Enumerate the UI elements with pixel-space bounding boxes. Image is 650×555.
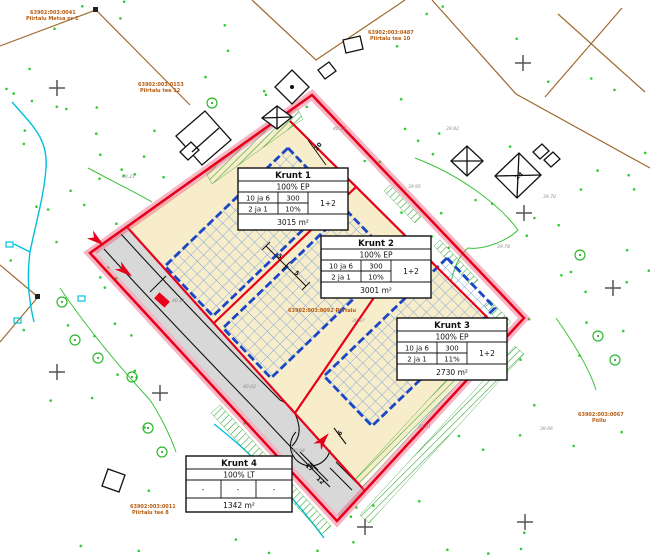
- vegetation-dot: [268, 552, 271, 555]
- svg-text:63902:003:0092 Piirtalu: 63902:003:0092 Piirtalu: [288, 308, 357, 314]
- vegetation-dot: [31, 100, 34, 103]
- vegetation-dot: [104, 286, 107, 289]
- vegetation-dot: [24, 129, 27, 132]
- vegetation-dot: [67, 324, 70, 327]
- vegetation-dot: [116, 373, 119, 376]
- spot-height: 40.04: [292, 448, 305, 454]
- spot-height: 39.91: [418, 424, 431, 430]
- vegetation-dot: [560, 274, 563, 277]
- plot-table-krunt-4: Krunt 4 100% LT - - - 1342 m²: [186, 456, 292, 512]
- svg-text:Piirtalu tee 12: Piirtalu tee 12: [140, 88, 181, 94]
- svg-text:Põllu: Põllu: [592, 418, 607, 424]
- vegetation-dot: [224, 24, 227, 27]
- survey-cross-icon: [152, 385, 168, 401]
- vegetation-dot: [526, 234, 529, 237]
- plot-area: 2730 m²: [436, 368, 468, 377]
- vegetation-dot: [350, 515, 353, 518]
- plot-area: 1342 m²: [223, 501, 255, 510]
- vegetation-dot: [626, 249, 629, 252]
- vegetation-dot: [134, 370, 137, 373]
- vegetation-dot: [263, 90, 266, 93]
- svg-text:Piirtalu tee 10: Piirtalu tee 10: [370, 36, 411, 42]
- cadastral-label: 63902:003:0011 Piirtalu tee 8: [130, 504, 176, 516]
- plot-usage: 100% EP: [435, 333, 469, 342]
- vegetation-dot: [91, 397, 94, 400]
- plot-title: Krunt 3: [434, 321, 470, 331]
- vegetation-dot: [148, 489, 151, 492]
- vegetation-dot: [53, 27, 56, 30]
- plot-usage: 100% EP: [276, 183, 310, 192]
- vegetation-dot: [96, 106, 99, 109]
- survey-cross-icon: [49, 80, 65, 96]
- plot-floors: 1+2: [320, 199, 336, 208]
- vegetation-dot: [235, 538, 238, 541]
- cadastral-label: 63902:003:0153 Piirtalu tee 12: [138, 82, 184, 94]
- vegetation-dot: [620, 431, 623, 434]
- plot-table-krunt-3: Krunt 3 100% EP 10 ja 6 300 2 ja 1 11% 1…: [397, 318, 507, 380]
- vegetation-dot: [644, 152, 647, 155]
- vegetation-dot: [130, 334, 133, 337]
- vegetation-dot: [69, 190, 72, 193]
- vegetation-dot: [55, 241, 58, 244]
- plot-area: 3015 m²: [277, 218, 309, 227]
- svg-text:2 ja 1: 2 ja 1: [248, 206, 268, 214]
- svg-text:2 ja 1: 2 ja 1: [407, 356, 427, 364]
- vegetation-dot: [627, 174, 630, 177]
- spot-height: 40.12: [333, 126, 346, 132]
- spot-height: 39.70: [543, 194, 556, 200]
- vegetation-dot: [137, 550, 140, 553]
- spot-height: 39.66: [540, 426, 553, 432]
- plot-floors: 1+2: [479, 349, 495, 358]
- vegetation-dot: [363, 160, 366, 163]
- plot-usage: 100% EP: [359, 251, 393, 260]
- vegetation-dot: [425, 13, 428, 16]
- vegetation-dot: [547, 80, 550, 83]
- survey-cross-icon: [605, 280, 621, 296]
- vegetation-dot: [99, 276, 102, 279]
- vegetation-dot: [585, 321, 588, 324]
- svg-text:10 ja 6: 10 ja 6: [246, 195, 271, 203]
- vegetation-dot: [533, 404, 536, 407]
- vegetation-dot: [446, 549, 449, 552]
- vegetation-dot: [400, 211, 403, 214]
- vegetation-dot: [622, 330, 625, 333]
- cadastral-label: 63902:003:0067 Põllu: [578, 412, 624, 424]
- plot-table-krunt-1: Krunt 1 100% EP 10 ja 6 300 2 ja 1 10% 1…: [238, 168, 348, 230]
- svg-text:10%: 10%: [368, 274, 384, 282]
- vegetation-dot: [143, 155, 146, 158]
- vegetation-dot: [580, 188, 583, 191]
- plot-usage: 100% LT: [223, 471, 255, 480]
- vegetation-dot: [56, 106, 59, 109]
- survey-cross-icon: [515, 55, 531, 71]
- vegetation-dot: [404, 128, 407, 131]
- vegetation-dot: [509, 145, 512, 148]
- ditch-symbols: [6, 242, 85, 323]
- vegetation-dot: [83, 204, 86, 207]
- vegetation-dot: [458, 435, 461, 438]
- vegetation-dot: [584, 291, 587, 294]
- vegetation-dot: [570, 271, 573, 274]
- svg-text:10 ja 6: 10 ja 6: [329, 263, 354, 271]
- vegetation-dot: [440, 212, 443, 215]
- vegetation-dot: [23, 329, 26, 332]
- vegetation-dot: [491, 202, 494, 205]
- cadastral-label: 63902:003:0041 Piirtalu Metsa nr 1: [26, 10, 79, 22]
- vegetation-dot: [23, 143, 26, 146]
- survey-cross-icon: [516, 205, 532, 221]
- survey-cross-icon: [517, 514, 533, 530]
- vegetation-dot: [153, 130, 156, 133]
- vegetation-dot: [417, 140, 420, 143]
- vegetation-dot: [265, 94, 268, 97]
- vegetation-dot: [438, 132, 441, 135]
- plot-floors: 1+2: [403, 267, 419, 276]
- vegetation-dot: [5, 88, 8, 91]
- vegetation-dot: [316, 550, 319, 553]
- svg-text:11%: 11%: [444, 356, 460, 364]
- vegetation-dot: [572, 445, 575, 448]
- vegetation-dot: [47, 208, 50, 211]
- spot-height: 40.21: [122, 174, 135, 180]
- vegetation-dot: [162, 176, 165, 179]
- plot-area: 3001 m²: [360, 286, 392, 295]
- vegetation-dot: [613, 89, 616, 92]
- vegetation-dot: [352, 541, 355, 544]
- vegetation-dot: [396, 45, 399, 48]
- vegetation-dot: [123, 0, 126, 3]
- vegetation-dot: [432, 153, 435, 156]
- vegetation-dot: [119, 17, 122, 20]
- bench-symbol: [102, 469, 125, 492]
- vegetation-dot: [12, 92, 15, 95]
- vegetation-dot: [625, 281, 628, 284]
- svg-text:2 ja 1: 2 ja 1: [331, 274, 351, 282]
- vegetation-dot: [35, 205, 38, 208]
- vegetation-dot: [474, 199, 477, 202]
- vegetation-dot: [28, 68, 31, 71]
- vegetation-dot: [9, 259, 12, 262]
- vegetation-dot: [519, 434, 522, 437]
- vegetation-dot: [533, 217, 536, 220]
- vegetation-dot: [578, 354, 581, 357]
- vegetation-dot: [633, 188, 636, 191]
- survey-cross-icon: [49, 364, 65, 380]
- vegetation-dot: [115, 222, 118, 225]
- vegetation-dot: [557, 224, 560, 227]
- vegetation-dot: [520, 548, 523, 551]
- plot-title: Krunt 4: [221, 459, 257, 469]
- svg-text:300: 300: [369, 263, 382, 271]
- vegetation-dot: [204, 76, 207, 79]
- svg-text:Piirtalu Metsa nr 1: Piirtalu Metsa nr 1: [26, 16, 79, 22]
- spot-height: 40.11: [172, 298, 185, 304]
- vegetation-dot: [306, 106, 309, 109]
- vegetation-dot: [596, 169, 599, 172]
- vegetation-dot: [515, 38, 518, 41]
- vegetation-dot: [482, 448, 485, 451]
- svg-text:Piirtalu tee 8: Piirtalu tee 8: [132, 510, 169, 516]
- vegetation-dot: [418, 500, 421, 503]
- spot-height: 39.87: [352, 318, 365, 324]
- site-plan-stage: 24 20 5 5 17 12 6 40.1240.0839.9539.8739…: [0, 0, 650, 555]
- vegetation-dot: [49, 399, 52, 402]
- svg-text:10 ja 6: 10 ja 6: [405, 345, 430, 353]
- vegetation-dot: [441, 5, 444, 8]
- vegetation-dot: [120, 168, 123, 171]
- svg-text:300: 300: [445, 345, 458, 353]
- plot-table-krunt-2: Krunt 2 100% EP 10 ja 6 300 2 ja 1 10% 1…: [321, 236, 431, 298]
- vegetation-dot: [81, 5, 84, 8]
- vegetation-dot: [93, 335, 96, 338]
- vegetation-dot: [95, 132, 98, 135]
- site-plan-map: 24 20 5 5 17 12 6 40.1240.0839.9539.8739…: [0, 0, 650, 555]
- vegetation-dot: [80, 545, 83, 548]
- vegetation-dot: [65, 108, 68, 111]
- vegetation-dot: [227, 50, 230, 53]
- vegetation-dot: [590, 77, 593, 80]
- vegetation-dot: [523, 532, 526, 535]
- vegetation-dot: [98, 177, 101, 180]
- spot-height: 39.82: [446, 126, 459, 132]
- svg-text:10%: 10%: [285, 206, 301, 214]
- spot-height: 39.78: [497, 244, 510, 250]
- svg-text:300: 300: [286, 195, 299, 203]
- spot-height: 39.95: [408, 184, 421, 190]
- vegetation-dot: [114, 322, 117, 325]
- spot-height: 40.02: [243, 384, 256, 390]
- vegetation-dot: [99, 153, 102, 156]
- plot-title: Krunt 1: [275, 171, 311, 181]
- vegetation-dot: [400, 98, 403, 101]
- cadastral-label: 63902:003:0487 Piirtalu tee 10: [368, 30, 414, 42]
- cadastral-label: 63902:003:0092 Piirtalu: [288, 308, 357, 314]
- plot-title: Krunt 2: [358, 239, 394, 249]
